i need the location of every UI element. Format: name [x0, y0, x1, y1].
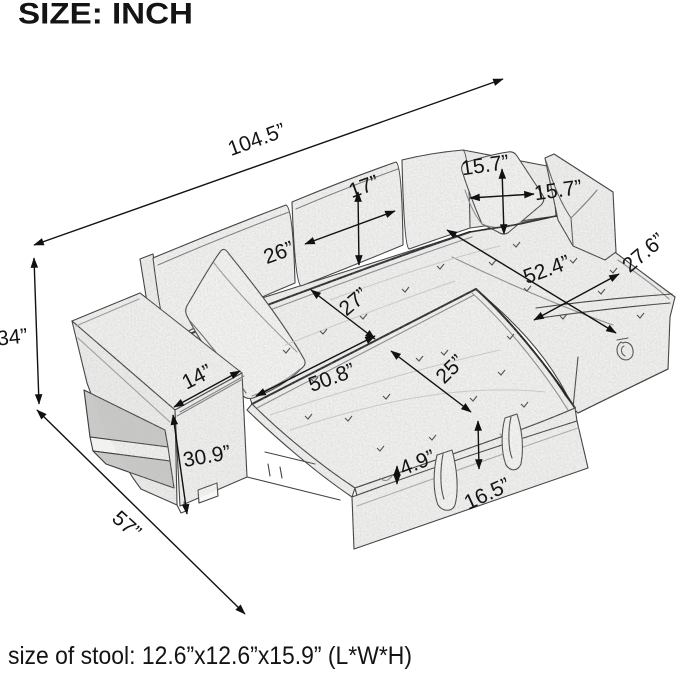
svg-text:SIZE: INCH: SIZE: INCH [18, 0, 193, 31]
svg-text:34”: 34” [0, 325, 29, 351]
svg-text:size of stool: 12.6”x12.6”x15.: size of stool: 12.6”x12.6”x15.9” (L*W*H) [8, 642, 412, 670]
